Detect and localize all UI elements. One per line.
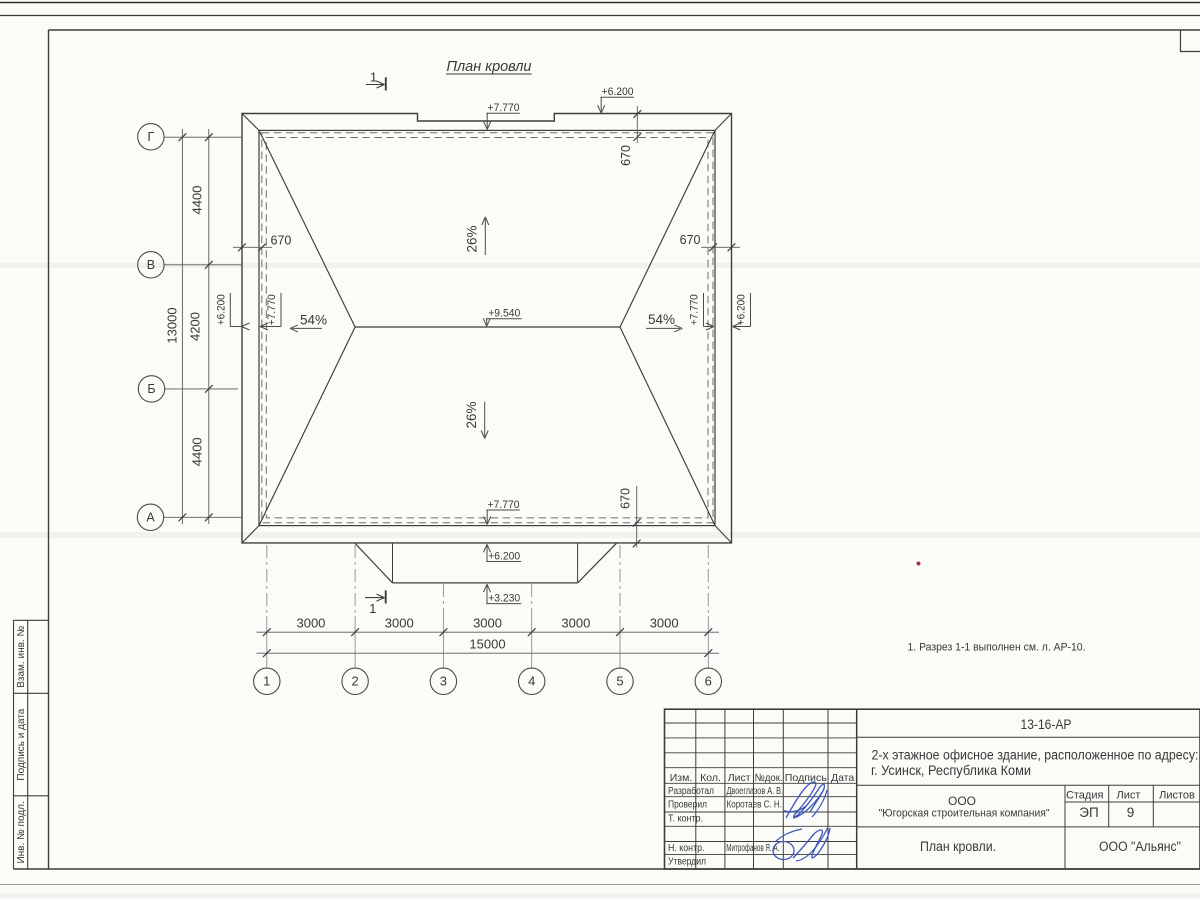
svg-text:4400: 4400 <box>190 186 205 215</box>
svg-text:1: 1 <box>263 674 270 689</box>
svg-text:54%: 54% <box>300 313 327 328</box>
svg-text:Коротаев С. Н.: Коротаев С. Н. <box>727 800 783 811</box>
svg-text:Подпись: Подпись <box>785 772 828 784</box>
svg-text:Н. контр.: Н. контр. <box>668 843 705 854</box>
svg-text:670: 670 <box>680 233 701 247</box>
svg-text:4200: 4200 <box>188 312 203 341</box>
svg-text:Подпись и дата: Подпись и дата <box>16 708 27 780</box>
svg-text:План кровли: План кровли <box>447 58 533 75</box>
svg-text:4400: 4400 <box>190 437 205 466</box>
svg-text:+7.770: +7.770 <box>488 102 520 114</box>
svg-text:3000: 3000 <box>385 615 414 630</box>
svg-text:9: 9 <box>1127 805 1135 820</box>
svg-text:+7.770: +7.770 <box>488 499 520 511</box>
svg-text:1: 1 <box>369 601 376 616</box>
svg-text:Листов: Листов <box>1159 789 1195 801</box>
svg-text:15000: 15000 <box>469 637 505 652</box>
svg-text:Стадия: Стадия <box>1066 789 1104 801</box>
svg-text:13-16-АР: 13-16-АР <box>1021 717 1072 732</box>
svg-text:Разработал: Разработал <box>668 785 714 797</box>
svg-text:Лист: Лист <box>728 772 751 784</box>
svg-text:План кровли.: План кровли. <box>920 839 996 854</box>
svg-text:3000: 3000 <box>650 615 679 630</box>
svg-text:+9.540: +9.540 <box>488 308 520 320</box>
svg-text:670: 670 <box>619 488 633 509</box>
svg-text:+6.200: +6.200 <box>215 294 227 325</box>
svg-text:3000: 3000 <box>296 615 325 630</box>
svg-text:1. Разрез 1-1 выполнен см. л.: 1. Разрез 1-1 выполнен см. л. АР-10. <box>908 642 1086 654</box>
svg-text:Инв. № подл.: Инв. № подл. <box>16 801 27 863</box>
svg-text:2-х этажное офисное здание, ра: 2-х этажное офисное здание, расположенно… <box>872 747 1199 762</box>
svg-text:Кол.: Кол. <box>700 772 721 784</box>
svg-text:670: 670 <box>619 145 633 166</box>
svg-text:Утвердил: Утвердил <box>668 857 706 868</box>
svg-text:54%: 54% <box>648 312 675 327</box>
svg-text:Митрофанов Я. А.: Митрофанов Я. А. <box>726 842 779 854</box>
svg-text:Двоеглазов А. В.: Двоеглазов А. В. <box>727 786 784 797</box>
svg-text:"Югорская строительная компани: "Югорская строительная компания" <box>879 808 1050 820</box>
svg-text:г. Усинск, Республика Коми: г. Усинск, Республика Коми <box>871 763 1031 778</box>
svg-text:Изм.: Изм. <box>670 772 693 784</box>
svg-text:26%: 26% <box>464 401 479 428</box>
svg-text:+6.200: +6.200 <box>736 294 748 325</box>
svg-text:В: В <box>147 258 155 272</box>
svg-text:Взам. инв. №: Взам. инв. № <box>16 626 27 688</box>
svg-text:2: 2 <box>351 674 358 689</box>
svg-text:+6.200: +6.200 <box>488 550 520 562</box>
svg-text:Дата: Дата <box>831 772 854 784</box>
svg-text:Б: Б <box>147 382 155 396</box>
svg-text:А: А <box>146 511 155 525</box>
svg-text:1: 1 <box>370 70 377 85</box>
svg-text:3: 3 <box>440 674 447 689</box>
svg-text:ООО: ООО <box>948 794 976 808</box>
svg-text:+7.770: +7.770 <box>266 294 278 325</box>
svg-text:Г: Г <box>148 130 155 144</box>
svg-text:6: 6 <box>705 674 712 689</box>
svg-text:4: 4 <box>528 674 535 689</box>
svg-text:Проверил: Проверил <box>668 800 707 811</box>
svg-text:670: 670 <box>271 234 292 248</box>
svg-text:ООО "Альянс": ООО "Альянс" <box>1099 839 1181 854</box>
svg-text:№док.: №док. <box>755 772 783 784</box>
svg-text:+7.770: +7.770 <box>689 294 701 325</box>
svg-text:3000: 3000 <box>473 615 502 630</box>
svg-text:Лист: Лист <box>1117 789 1141 801</box>
svg-text:+3.230: +3.230 <box>488 592 520 604</box>
svg-text:ЭП: ЭП <box>1079 805 1098 820</box>
svg-text:3000: 3000 <box>561 615 590 630</box>
svg-text:13000: 13000 <box>165 307 180 343</box>
svg-text:26%: 26% <box>465 225 480 252</box>
svg-text:5: 5 <box>616 674 623 689</box>
svg-text:Т. контр.: Т. контр. <box>668 814 703 825</box>
svg-text:+6.200: +6.200 <box>602 86 634 98</box>
